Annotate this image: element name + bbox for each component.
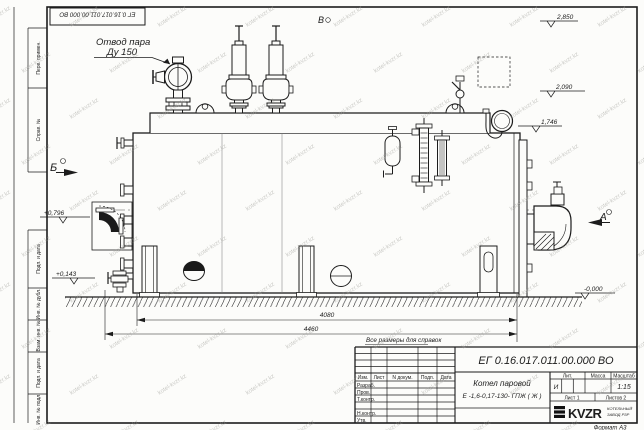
steam-outlet-valve bbox=[153, 57, 192, 113]
tb-row-utv: Утв. bbox=[357, 418, 367, 424]
tb-header-dokum: N докум. bbox=[392, 375, 412, 381]
lifting-lug-right bbox=[446, 104, 464, 113]
logo-text: KVZR bbox=[568, 406, 603, 421]
steam-outlet-callout: Отвод пара Ду 150 bbox=[94, 37, 170, 64]
frame-col-label: Инв. № дубл. bbox=[36, 289, 42, 320]
dim-4080-label: 4080 bbox=[320, 312, 335, 319]
frame-col-label: Подп. и дата bbox=[36, 358, 42, 388]
tb-scale-value: 1:15 bbox=[617, 384, 631, 391]
drain-valve-cluster bbox=[108, 271, 133, 292]
tb-lit-value: И bbox=[554, 384, 559, 391]
tb-sheet: Лист 1 bbox=[564, 396, 579, 402]
tb-row-nkontr: Н.контр. bbox=[357, 411, 376, 417]
frame-col-label: Справ. № bbox=[36, 119, 42, 142]
tb-mass-label: Масса bbox=[591, 374, 606, 380]
elevation-0000: -0,000 bbox=[584, 286, 603, 293]
note-text: Все размеры для справок bbox=[366, 336, 442, 344]
boiler-drawing-canvas: Перв. примен. Справ. № Подп. и дата Инв.… bbox=[0, 0, 644, 430]
elevation-2090: 2,090 bbox=[555, 84, 573, 91]
tb-name-line1: Котел паровой bbox=[473, 379, 531, 388]
tb-header-list: Лист bbox=[374, 375, 386, 381]
dim-4460-label: 4460 bbox=[304, 326, 319, 333]
tb-row-razrab: Разраб. bbox=[357, 383, 375, 389]
tb-row-tkontr: Т.контр. bbox=[357, 397, 375, 403]
burner-assembly bbox=[519, 140, 571, 297]
safety-valve-2 bbox=[259, 26, 293, 113]
frame-col-label: Взам. инв. № bbox=[36, 321, 42, 352]
drawing-sheet: Перв. примен. Справ. № Подп. и дата Инв.… bbox=[0, 0, 644, 430]
tb-row-prov: Пров. bbox=[357, 390, 370, 396]
title-block: Изм. Лист N докум. Подп. Дата Разраб. Пр… bbox=[355, 347, 637, 430]
frame-col-label: Перв. примен. bbox=[36, 41, 42, 74]
doc-number-inverted: ЕГ 0.16.017.011.00.000 ВО bbox=[59, 11, 135, 18]
elevation-2850: 2,850 bbox=[556, 14, 574, 21]
top-plate bbox=[150, 113, 490, 133]
frame-col-label: Инв. № подл. bbox=[36, 393, 42, 424]
tb-header-izm: Изм. bbox=[358, 375, 369, 381]
format-label: Формат А3 bbox=[594, 426, 627, 430]
reference-note: Все размеры для справок bbox=[365, 336, 442, 345]
elevation-1746: 1,746 bbox=[541, 119, 558, 126]
tb-header-podp: Подп. bbox=[421, 375, 434, 381]
tb-lit-label: Лит. bbox=[563, 374, 572, 380]
frame-col-label: Подп. и дата bbox=[36, 244, 42, 274]
view-label-v: В bbox=[318, 15, 324, 25]
doc-number-top-box: ЕГ 0.16.017.011.00.000 ВО bbox=[50, 8, 145, 25]
tb-sheets: Листов 2 bbox=[606, 396, 627, 402]
elevation-0796: +0,796 bbox=[44, 210, 64, 217]
tb-doc-number: ЕГ 0.16.017.011.00.000 ВО bbox=[478, 355, 614, 367]
tb-header-data: Дата bbox=[440, 375, 451, 381]
tb-name-line2: Е -1,6-0,17-130- ГПЖ ( Ж ) bbox=[462, 393, 541, 400]
logo-sub1: КОТЕЛЬНЫЙ bbox=[607, 406, 632, 411]
frame-column-labels: Перв. примен. Справ. № Подп. и дата Инв.… bbox=[36, 41, 42, 424]
lifting-lug-left bbox=[196, 104, 214, 113]
dimension-4080: 4080 bbox=[137, 294, 517, 342]
callout-line2: Ду 150 bbox=[106, 47, 138, 58]
kvzr-logo: KVZR КОТЕЛЬНЫЙ ЗАВОД РЗР bbox=[554, 406, 632, 421]
shell-top-tap bbox=[117, 137, 133, 149]
logo-sub2: ЗАВОД РЗР bbox=[607, 412, 630, 417]
elevation-0143: +0,143 bbox=[56, 271, 76, 278]
tb-scale-label: Масштаб bbox=[613, 374, 635, 380]
safety-valve-1 bbox=[222, 26, 256, 113]
